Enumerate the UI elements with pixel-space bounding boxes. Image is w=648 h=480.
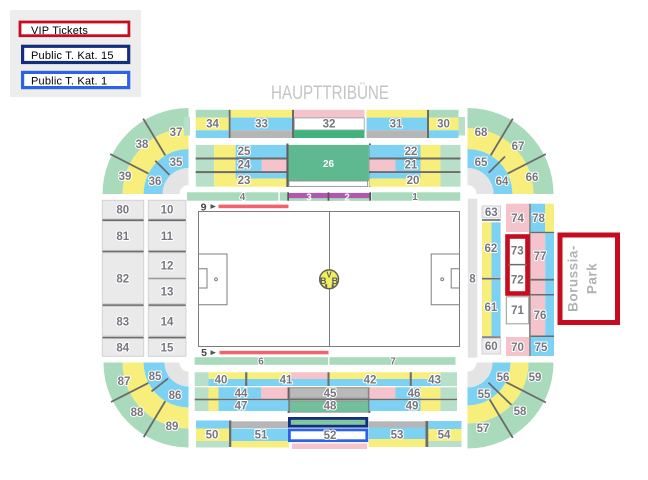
svg-text:26: 26	[323, 159, 335, 170]
svg-text:47: 47	[235, 401, 248, 413]
svg-text:48: 48	[324, 401, 337, 413]
svg-text:89: 89	[166, 421, 179, 433]
svg-text:62: 62	[485, 243, 498, 255]
svg-text:83: 83	[116, 316, 129, 328]
svg-text:78: 78	[532, 213, 545, 225]
svg-text:66: 66	[526, 172, 539, 184]
svg-text:68: 68	[475, 127, 488, 139]
svg-text:3: 3	[306, 193, 312, 204]
svg-text:84: 84	[116, 342, 129, 354]
svg-text:VIP Tickets: VIP Tickets	[31, 25, 88, 37]
svg-text:25: 25	[238, 146, 251, 158]
svg-text:87: 87	[118, 376, 131, 388]
svg-text:Park: Park	[585, 263, 600, 294]
svg-text:8: 8	[469, 274, 476, 286]
svg-text:61: 61	[485, 302, 498, 314]
svg-text:88: 88	[131, 407, 144, 419]
svg-text:76: 76	[534, 310, 547, 322]
svg-text:40: 40	[215, 375, 228, 387]
svg-text:30: 30	[437, 119, 450, 131]
svg-text:49: 49	[406, 401, 419, 413]
svg-text:67: 67	[512, 141, 525, 153]
svg-text:51: 51	[255, 430, 268, 442]
svg-text:4: 4	[240, 192, 246, 203]
svg-text:32: 32	[323, 119, 336, 131]
svg-text:36: 36	[149, 176, 162, 188]
svg-text:63: 63	[485, 207, 498, 219]
svg-text:42: 42	[364, 375, 377, 387]
svg-text:59: 59	[529, 372, 542, 384]
svg-text:73: 73	[511, 246, 524, 258]
svg-text:71: 71	[511, 305, 524, 317]
svg-text:24: 24	[238, 160, 251, 172]
svg-text:77: 77	[534, 251, 547, 263]
svg-text:35: 35	[170, 157, 183, 169]
svg-text:37: 37	[170, 127, 183, 139]
svg-text:70: 70	[511, 342, 524, 354]
svg-text:50: 50	[206, 430, 219, 442]
svg-text:46: 46	[408, 388, 421, 400]
svg-text:34: 34	[206, 119, 219, 131]
svg-text:72: 72	[511, 275, 524, 287]
svg-text:39: 39	[119, 171, 132, 183]
svg-text:13: 13	[161, 286, 174, 298]
svg-text:43: 43	[428, 375, 441, 387]
svg-text:HAUPTTRIBÜNE: HAUPTTRIBÜNE	[271, 83, 389, 104]
svg-text:86: 86	[169, 390, 182, 402]
svg-text:1: 1	[412, 192, 418, 203]
svg-text:Borussia-: Borussia-	[566, 245, 581, 312]
svg-text:2: 2	[344, 193, 350, 204]
svg-text:33: 33	[255, 119, 268, 131]
svg-text:22: 22	[405, 146, 418, 158]
svg-text:57: 57	[477, 423, 490, 435]
svg-text:74: 74	[511, 213, 524, 225]
svg-text:44: 44	[235, 388, 248, 400]
svg-text:80: 80	[116, 205, 129, 217]
svg-text:Public T. Kat. 1: Public T. Kat. 1	[31, 76, 107, 88]
svg-text:82: 82	[116, 273, 129, 285]
svg-text:64: 64	[496, 176, 509, 188]
svg-text:60: 60	[485, 341, 498, 353]
svg-text:58: 58	[514, 406, 527, 418]
svg-text:85: 85	[149, 371, 162, 383]
svg-text:14: 14	[161, 316, 174, 328]
svg-text:81: 81	[116, 231, 129, 243]
svg-text:56: 56	[497, 372, 510, 384]
svg-text:23: 23	[238, 175, 251, 187]
svg-text:41: 41	[280, 375, 293, 387]
svg-text:7: 7	[390, 356, 396, 367]
svg-text:21: 21	[405, 160, 418, 172]
svg-text:6: 6	[258, 356, 264, 367]
svg-text:31: 31	[390, 119, 403, 131]
svg-text:Public T. Kat. 15: Public T. Kat. 15	[31, 50, 114, 62]
svg-text:11: 11	[161, 231, 174, 243]
svg-text:45: 45	[324, 388, 337, 400]
svg-text:65: 65	[475, 157, 488, 169]
svg-text:75: 75	[535, 342, 548, 354]
svg-text:12: 12	[161, 260, 174, 272]
svg-text:10: 10	[161, 205, 174, 217]
svg-text:15: 15	[161, 342, 174, 354]
svg-text:20: 20	[407, 175, 420, 187]
svg-text:54: 54	[438, 430, 451, 442]
svg-text:52: 52	[324, 430, 337, 442]
svg-text:38: 38	[136, 139, 149, 151]
svg-text:55: 55	[478, 389, 491, 401]
svg-text:53: 53	[391, 430, 404, 442]
